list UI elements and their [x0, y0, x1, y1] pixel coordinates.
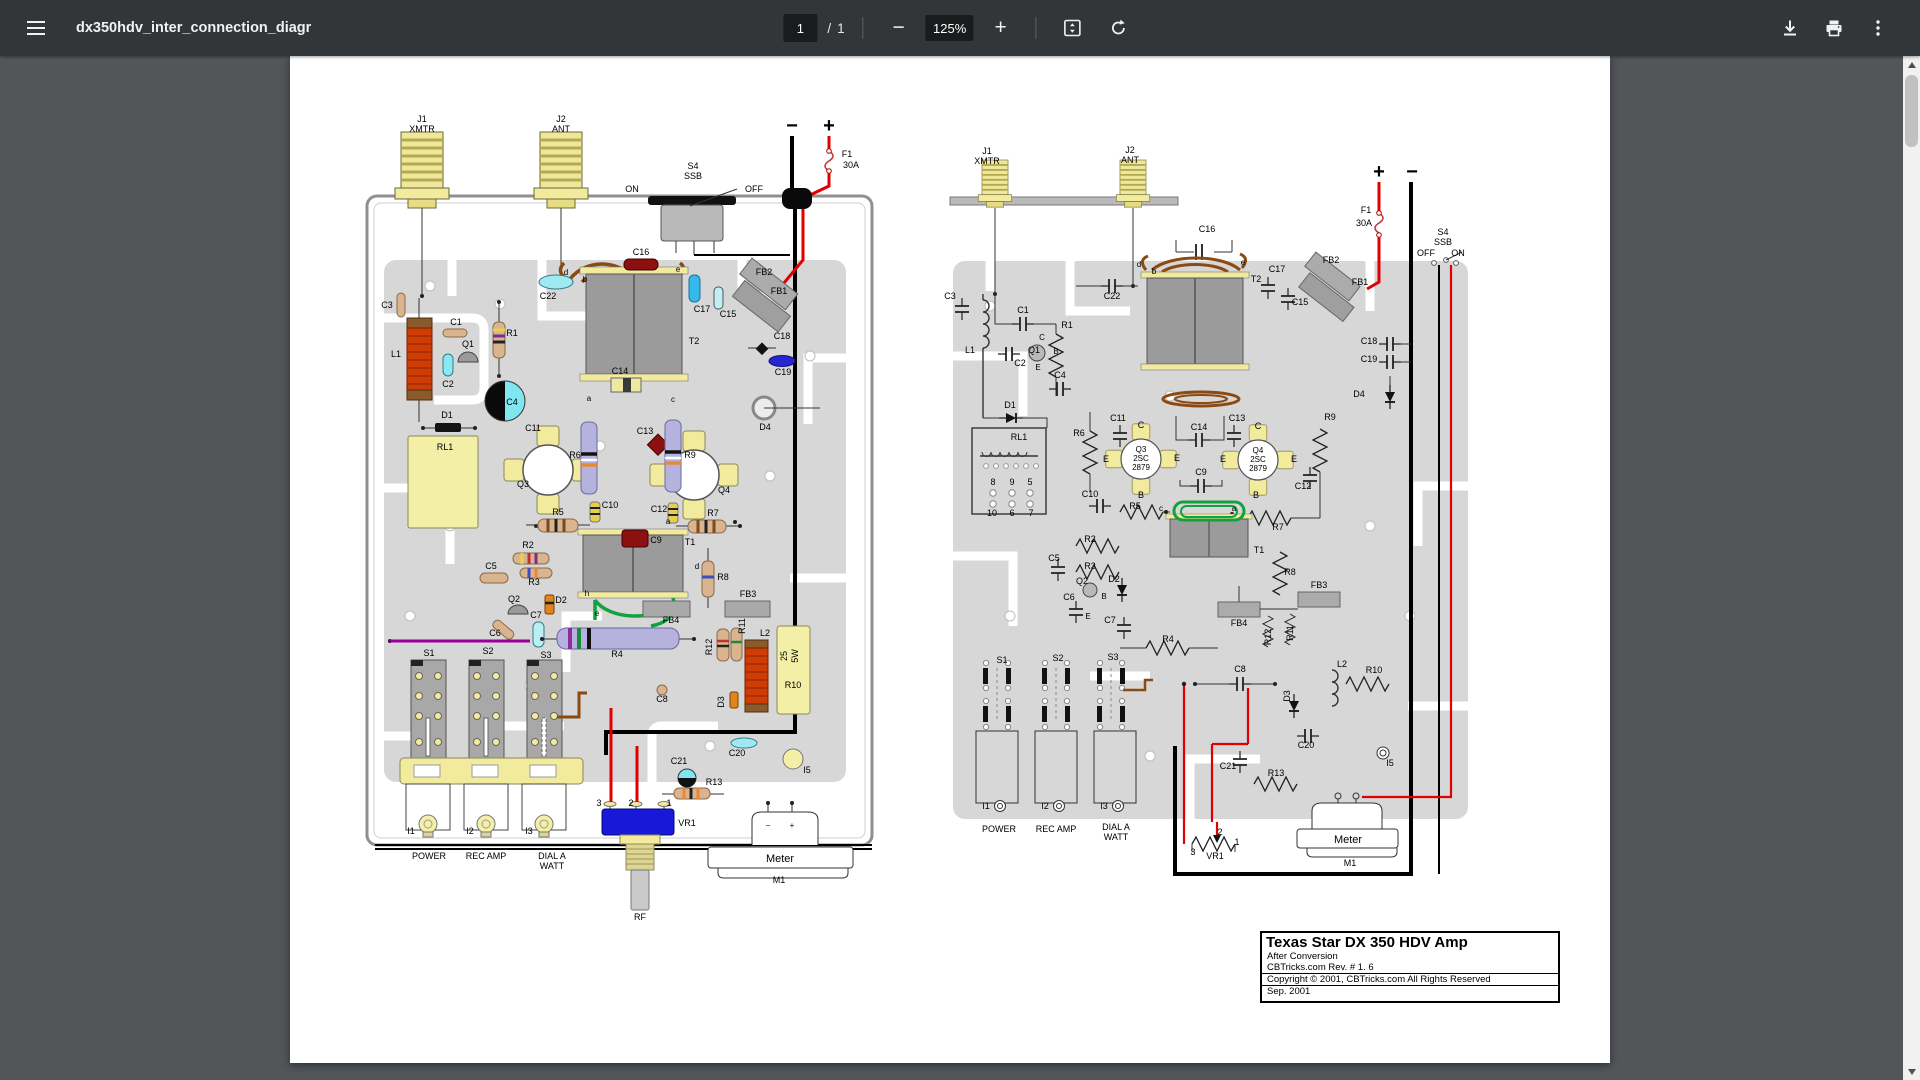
diagram-label: 10: [987, 508, 997, 518]
left-diagram: J1XMTRJ2ANTS4SSBONOFF−+F130AC16C22C17C15…: [367, 114, 872, 922]
diagram-label: C12: [1295, 481, 1312, 491]
diagram-label: C16: [633, 247, 650, 257]
scroll-up-icon: [1908, 62, 1916, 68]
diagram-label: FB2: [756, 267, 773, 277]
diagram-label: C1: [450, 317, 462, 327]
download-icon: [1780, 18, 1800, 38]
diagram-label: WATT: [540, 861, 565, 871]
page-count: / 1: [827, 21, 844, 36]
fuse-f1: [825, 151, 833, 171]
diagram-label: B: [1138, 490, 1144, 500]
coil-l2: [745, 640, 768, 712]
title-block-line: Copyright © 2001, CBTricks.com All Right…: [1262, 973, 1558, 985]
diagram-label: R4: [611, 649, 623, 659]
diagram-label: C5: [485, 561, 497, 571]
diagram-label: b: [1152, 267, 1157, 276]
diagram-label: h: [585, 589, 589, 598]
diagram-label: L1: [965, 345, 975, 355]
fit-page-icon: [1063, 18, 1083, 38]
diagram-label: C13: [637, 426, 654, 436]
interconnection-diagram: J1XMTRJ2ANTS4SSBONOFF−+F130AC16C22C17C15…: [290, 56, 1610, 1063]
diagram-label: S1: [996, 655, 1007, 665]
capacitor-c1: [443, 329, 467, 337]
diagram-label: a: [587, 394, 592, 403]
diagram-label: J1: [982, 146, 992, 156]
ferrite-bead-fb3: [725, 601, 770, 617]
potentiometer-vr1-symbol: [1192, 822, 1235, 852]
diagram-label: R13: [706, 777, 723, 787]
diagram-label: R2: [522, 540, 534, 550]
capacitor-c16: [624, 259, 658, 270]
diagram-label: 2SC: [1250, 455, 1266, 464]
diagram-label: I2: [466, 826, 474, 836]
ferrite-bead-fb3-symbol: [1298, 592, 1340, 607]
vertical-scrollbar[interactable]: [1903, 56, 1920, 1080]
diagram-label: E: [1085, 612, 1090, 621]
page-separator: /: [827, 21, 831, 36]
diagram-label: S2: [482, 646, 493, 656]
diagram-label: E: [1103, 454, 1109, 464]
diagram-label: R12: [1263, 629, 1273, 646]
title-block-line: CBTricks.com Rev. # 1. 6: [1262, 962, 1558, 973]
diagram-label: 3: [1190, 847, 1195, 857]
kebab-menu-icon: [1868, 18, 1888, 38]
diagram-label: R12: [704, 639, 714, 656]
switch-s1: [411, 660, 446, 758]
diagram-label: C4: [506, 397, 518, 407]
diagram-label: D1: [441, 410, 453, 420]
diagram-label: I3: [525, 826, 533, 836]
diagram-label: C7: [530, 610, 542, 620]
diagram-label: VR1: [678, 818, 696, 828]
diagram-label: S4: [687, 161, 698, 171]
diagram-label: REC AMP: [466, 851, 507, 861]
diode-d2: [545, 595, 554, 614]
capacitor-c3: [397, 293, 405, 317]
diagram-label: REC AMP: [1036, 824, 1077, 834]
diagram-label: 2: [628, 798, 633, 808]
diagram-label: R10: [785, 680, 802, 690]
capacitor-c19: [769, 356, 795, 367]
diagram-label: R13: [1268, 768, 1285, 778]
diagram-label: C18: [774, 331, 791, 341]
diagram-label: R3: [1084, 561, 1096, 571]
diagram-label: a: [666, 517, 671, 526]
diagram-label: I2: [1041, 801, 1049, 811]
diagram-label: e: [1241, 258, 1246, 267]
diagram-label: −: [786, 115, 798, 137]
diagram-label: ANT: [552, 124, 571, 134]
diagram-label: FB3: [740, 589, 757, 599]
diagram-label: XMTR: [409, 124, 435, 134]
diagram-label: 7: [1028, 508, 1033, 518]
diagram-label: R3: [528, 577, 540, 587]
diagram-label: +: [823, 115, 835, 137]
diagram-label: B: [1253, 490, 1259, 500]
diagram-label: e: [676, 265, 681, 274]
diagram-label: DIAL A: [538, 851, 566, 861]
switch-s2: [469, 660, 504, 758]
diagram-label: E: [1291, 454, 1297, 464]
print-icon: [1824, 18, 1844, 38]
diagram-label: 1: [1234, 837, 1239, 847]
diagram-label: R10: [1366, 665, 1383, 675]
diagram-label: D2: [555, 595, 567, 605]
diagram-label: S1: [423, 648, 434, 658]
diagram-label: 8: [990, 477, 995, 487]
diagram-label: Meter: [1334, 834, 1362, 846]
diagram-label: RF: [634, 912, 646, 922]
diagram-label: POWER: [412, 851, 447, 861]
diagram-label: FB2: [1323, 255, 1340, 265]
diagram-label: C12: [651, 504, 668, 514]
more-options-button[interactable]: [1860, 10, 1896, 46]
diagram-label: R5: [1129, 501, 1141, 511]
diagram-label: d: [695, 562, 699, 571]
diagram-label: E: [1220, 454, 1226, 464]
title-block-line: Sep. 2001: [1262, 985, 1558, 997]
diagram-label: D3: [1282, 690, 1292, 702]
diagram-label: E: [1174, 453, 1180, 463]
diagram-label: R8: [717, 572, 729, 582]
diagram-label: I5: [1386, 758, 1394, 768]
diagram-label: VR1: [1206, 851, 1224, 861]
diagram-label: ON: [625, 184, 639, 194]
diagram-label: C6: [1063, 592, 1075, 602]
diagram-label: 2: [1217, 827, 1222, 837]
zoom-in-button[interactable]: +: [984, 11, 1018, 45]
diagram-label: b: [583, 275, 588, 284]
diagram-label: FB4: [1231, 618, 1248, 628]
diagram-label: D3: [716, 696, 726, 708]
diagram-label: 2SC: [1133, 454, 1149, 463]
scroll-down-icon: [1908, 1069, 1916, 1075]
diagram-label: RL1: [437, 442, 454, 452]
diagram-label: R7: [707, 508, 719, 518]
diagram-label: FB3: [1311, 580, 1328, 590]
diagram-label: ON: [1451, 248, 1465, 258]
diagram-label: C21: [671, 756, 688, 766]
diagram-label: FB4: [663, 615, 680, 625]
print-button[interactable]: [1816, 10, 1852, 46]
rotate-button[interactable]: [1101, 10, 1137, 46]
diagram-label: B: [1053, 347, 1058, 356]
diagram-label: S4: [1437, 227, 1448, 237]
diagram-label: d: [1137, 260, 1141, 269]
diagram-label: C19: [1361, 354, 1378, 364]
diagram-label: e: [595, 609, 600, 618]
diagram-label: c: [1159, 504, 1163, 513]
page-total: 1: [837, 21, 845, 36]
diagram-label: C3: [944, 291, 956, 301]
diagram-label: Q4: [718, 485, 730, 495]
title-block-title: Texas Star DX 350 HDV Amp: [1262, 933, 1558, 951]
diagram-label: 25: [779, 651, 789, 661]
diagram-label: F1: [1361, 205, 1372, 215]
diagram-label: Meter: [766, 853, 794, 865]
toolbar-divider: [863, 17, 864, 39]
diagram-label: C22: [1104, 291, 1121, 301]
capacitor-c20: [731, 738, 757, 748]
diagram-label: J2: [1125, 145, 1135, 155]
diagram-label: OFF: [745, 184, 763, 194]
diagram-label: 2879: [1132, 463, 1150, 472]
lamp-i3-symbol: [1113, 801, 1124, 812]
potentiometer-vr1: [602, 802, 674, 836]
connector-j1: [978, 160, 1011, 207]
capacitor-c7: [533, 622, 544, 647]
diagram-label: Q1: [1028, 345, 1040, 355]
diagram-label: C11: [1110, 413, 1126, 423]
diagram-label: FB1: [1352, 277, 1369, 287]
diagram-label: T1: [685, 537, 696, 547]
diagram-label: C14: [612, 366, 629, 376]
zoom-out-button[interactable]: −: [882, 11, 916, 45]
diagram-label: Q1: [462, 339, 474, 349]
diode-d3: [730, 692, 738, 708]
diagram-label: −: [766, 821, 771, 830]
diagram-label: C17: [1269, 264, 1286, 274]
diagram-label: Q2: [1076, 576, 1088, 586]
diagram-label: 6: [1009, 508, 1014, 518]
diagram-label: R9: [684, 450, 696, 460]
diagram-label: R1: [1061, 320, 1073, 330]
fuse-f1: [1375, 213, 1383, 233]
diagram-label: Q3: [1136, 445, 1147, 454]
capacitor-c10: [590, 502, 600, 522]
diagram-label: C: [1039, 333, 1045, 342]
rf-control-shaft: [620, 835, 660, 910]
diagram-label: S2: [1052, 653, 1063, 663]
scroll-down-button[interactable]: [1903, 1063, 1920, 1080]
diagram-label: RL1: [1011, 432, 1028, 442]
lamp-i1-symbol: [995, 801, 1006, 812]
pdf-toolbar: dx350hdv_inter_connection_diagr / 1 − 12…: [0, 0, 1920, 56]
hamburger-icon: [27, 21, 45, 35]
document-title: dx350hdv_inter_connection_diagr: [76, 20, 311, 36]
diagram-label: C6: [489, 628, 501, 638]
scrollbar-thumb[interactable]: [1905, 75, 1918, 147]
diagram-label: L2: [760, 628, 770, 638]
diagram-label: M1: [773, 875, 786, 885]
ferrite-bead-fb4-symbol: [1218, 602, 1260, 617]
diagram-label: C20: [1298, 740, 1315, 750]
diagram-label: D4: [1353, 389, 1365, 399]
connector-j2: [534, 132, 588, 208]
diagram-label: C8: [656, 694, 668, 704]
diagram-label: C9: [1195, 467, 1207, 477]
diagram-label: R7: [1272, 522, 1284, 532]
diagram-label: C22: [540, 291, 557, 301]
diagram-label: C10: [1082, 489, 1099, 499]
diagram-label: M1: [1344, 858, 1357, 868]
lamp-i5: [783, 749, 803, 769]
document-area: J1XMTRJ2ANTS4SSBONOFF−+F130AC16C22C17C15…: [0, 56, 1903, 1080]
diagram-label: C9: [650, 535, 662, 545]
diagram-label: +: [1373, 161, 1385, 183]
capacitor-c5: [480, 573, 508, 583]
diagram-label: T1: [1254, 545, 1265, 555]
diagram-label: I5: [803, 765, 811, 775]
diagram-label: +: [790, 821, 795, 830]
diagram-label: J2: [556, 114, 566, 124]
switch-s3: [527, 660, 562, 758]
diagram-label: C4: [1054, 370, 1066, 380]
diagram-label: F1: [842, 149, 853, 159]
resistor-r2: [513, 553, 549, 564]
diagram-label: S3: [1107, 652, 1118, 662]
diagram-label: FB1: [771, 286, 788, 296]
fit-page-button[interactable]: [1055, 10, 1091, 46]
diagram-label: E: [1035, 363, 1040, 372]
diagram-label: SSB: [684, 171, 702, 181]
diagram-label: Q2: [508, 594, 520, 604]
diagram-label: R8: [1284, 567, 1296, 577]
diagram-label: C20: [729, 748, 746, 758]
diagram-label: R11: [1285, 625, 1295, 641]
diagram-label: −: [1406, 161, 1418, 183]
diagram-label: R1: [506, 328, 518, 338]
diagram-label: C10: [602, 500, 619, 510]
scroll-up-button[interactable]: [1903, 56, 1920, 73]
diagram-label: C14: [1191, 422, 1208, 432]
download-button[interactable]: [1772, 10, 1808, 46]
capacitor-c22: [539, 275, 573, 289]
diagram-label: R4: [1162, 634, 1174, 644]
diagram-label: J1: [417, 114, 427, 124]
diagram-label: 5W: [790, 649, 800, 663]
diagram-label: C8: [1234, 664, 1246, 674]
resistor-r4: [540, 628, 696, 649]
page-number-input[interactable]: [783, 14, 817, 42]
diagram-label: T2: [689, 336, 700, 346]
diagram-label: 30A: [1356, 218, 1372, 228]
menu-button[interactable]: [18, 10, 54, 46]
diagram-label: C19: [775, 367, 792, 377]
diagram-label: C17: [694, 304, 711, 314]
diagram-label: R6: [569, 450, 581, 460]
connector-j1: [395, 132, 449, 208]
diagram-label: R6: [1073, 428, 1085, 438]
diagram-label: XMTR: [974, 156, 1000, 166]
connector-j2: [1116, 160, 1149, 207]
diagram-label: R9: [1324, 412, 1336, 422]
diagram-label: D2: [1108, 574, 1120, 584]
diagram-label: 9: [1009, 477, 1014, 487]
diagram-label: C1: [1017, 305, 1029, 315]
diagram-label: R5: [552, 507, 564, 517]
diagram-label: Q4: [1253, 446, 1264, 455]
capacitor-c15: [714, 287, 723, 309]
diagram-label: d: [564, 268, 568, 277]
diagram-label: C7: [1104, 615, 1116, 625]
diagram-label: DIAL A: [1102, 822, 1130, 832]
diagram-label: R11: [737, 618, 747, 634]
diagram-label: ANT: [1121, 155, 1140, 165]
lamp-i2-symbol: [1054, 801, 1065, 812]
diagram-label: S3: [540, 650, 551, 660]
diagram-label: C13: [1229, 413, 1246, 423]
diagram-label: C18: [1361, 336, 1378, 346]
diagram-label: D4: [759, 422, 771, 432]
diagram-label: C15: [720, 309, 737, 319]
diagram-label: 3: [596, 798, 601, 808]
diagram-label: C5: [1048, 553, 1060, 563]
diagram-label: C11: [525, 423, 541, 433]
diagram-label: C16: [1199, 224, 1216, 234]
diagram-label: WATT: [1104, 832, 1129, 842]
diagram-label: 30A: [843, 160, 859, 170]
title-block: Texas Star DX 350 HDV Amp After Conversi…: [1260, 931, 1560, 1003]
diagram-label: 5: [1027, 477, 1032, 487]
right-diagram: J1XMTRJ2ANTC16+−F130AS4SSBOFFONC3C22C17C…: [944, 145, 1468, 874]
diagram-label: c: [671, 395, 675, 404]
diagram-label: C2: [442, 379, 454, 389]
toolbar-divider: [1036, 17, 1037, 39]
resistor-r9: [665, 420, 681, 492]
resistor-r6: [581, 422, 597, 494]
diagram-label: C: [1255, 421, 1262, 431]
diagram-label: C15: [1292, 297, 1309, 307]
diagram-label: R2: [1084, 534, 1096, 544]
title-block-line: After Conversion: [1262, 951, 1558, 962]
diagram-label: B: [1101, 592, 1106, 601]
diagram-label: OFF: [1417, 248, 1435, 258]
diagram-label: I1: [407, 826, 415, 836]
capacitor-c2: [443, 354, 453, 376]
resistor-r10: [777, 626, 810, 714]
diagram-label: L1: [391, 349, 401, 359]
diagram-label: I3: [1100, 801, 1108, 811]
capacitor-c9: [622, 530, 648, 547]
diagram-label: POWER: [982, 824, 1017, 834]
diagram-label: C3: [381, 300, 393, 310]
diagram-label: 2879: [1249, 464, 1267, 473]
diagram-label: L2: [1337, 659, 1347, 669]
diagram-label: C2: [1014, 358, 1026, 368]
diagram-label: SSB: [1434, 237, 1452, 247]
diagram-label: T2: [1251, 274, 1262, 284]
diagram-label: D1: [1004, 400, 1016, 410]
capacitor-c4: [485, 381, 525, 421]
diagram-label: 1: [666, 798, 671, 808]
capacitor-c17: [689, 275, 700, 302]
diagram-label: Q3: [517, 479, 529, 489]
pdf-page: J1XMTRJ2ANTS4SSBONOFF−+F130AC16C22C17C15…: [290, 56, 1610, 1063]
rotate-icon: [1109, 18, 1129, 38]
diagram-label: a: [1232, 504, 1237, 513]
diagram-label: I1: [982, 801, 990, 811]
cable-grommet: [782, 188, 812, 209]
capacitor-c21: [678, 769, 696, 787]
switch-mount-bracket: [400, 758, 583, 784]
diagram-label: C21: [1220, 761, 1237, 771]
diagram-label: C: [1138, 420, 1145, 430]
zoom-level: 125%: [926, 15, 974, 41]
